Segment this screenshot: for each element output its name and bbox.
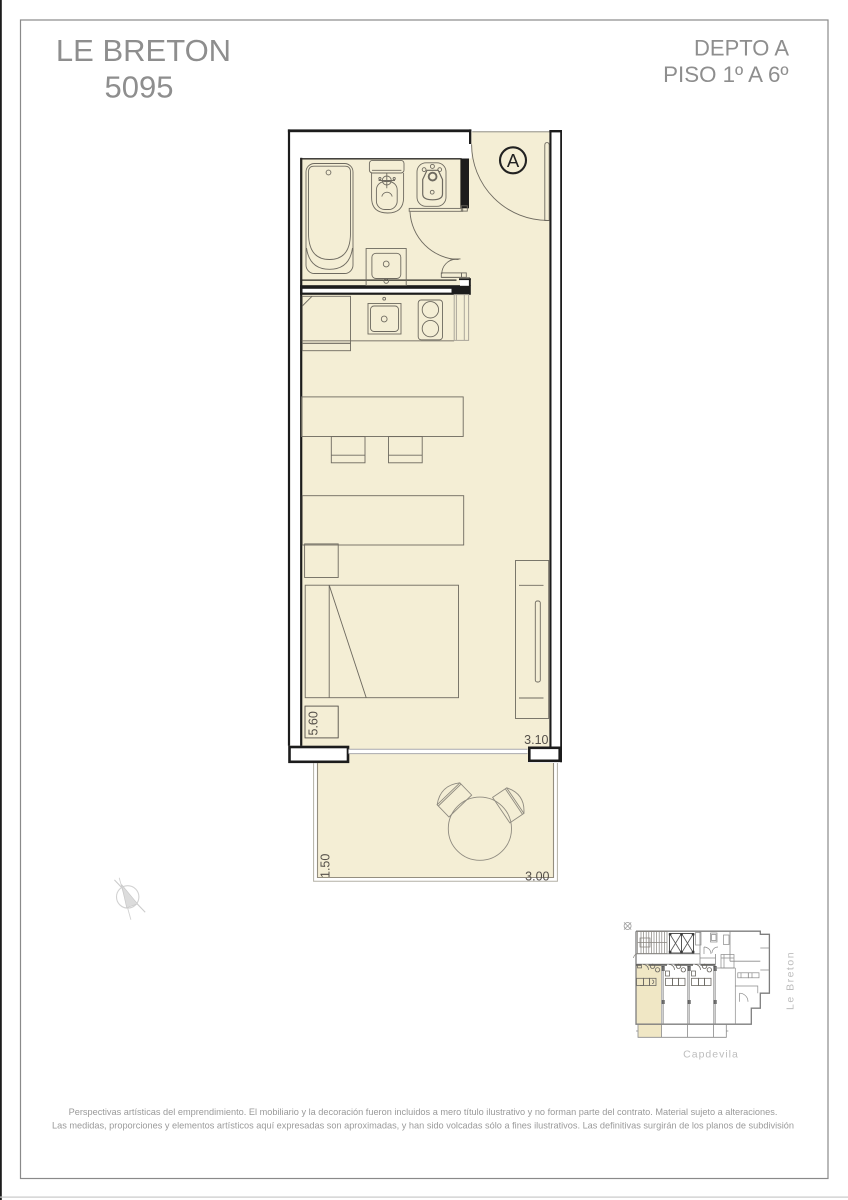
svg-text:3.00: 3.00 (525, 870, 549, 884)
svg-text:Las medidas, proporciones y el: Las medidas, proporciones y elementos ar… (52, 1120, 794, 1130)
svg-text:DEPTO A: DEPTO A (694, 35, 789, 60)
svg-text:5.60: 5.60 (307, 711, 321, 735)
svg-text:1.50: 1.50 (319, 854, 333, 878)
svg-text:Capdevila: Capdevila (683, 1049, 739, 1061)
svg-text:LE BRETON: LE BRETON (56, 33, 231, 68)
svg-text:Le Breton: Le Breton (785, 951, 797, 1010)
svg-text:Perspectivas artísticas del em: Perspectivas artísticas del emprendimien… (69, 1107, 778, 1117)
svg-text:PISO 1º A 6º: PISO 1º A 6º (663, 62, 788, 87)
svg-text:3.10: 3.10 (524, 733, 548, 747)
svg-text:5095: 5095 (105, 69, 174, 104)
svg-text:A: A (507, 150, 520, 171)
